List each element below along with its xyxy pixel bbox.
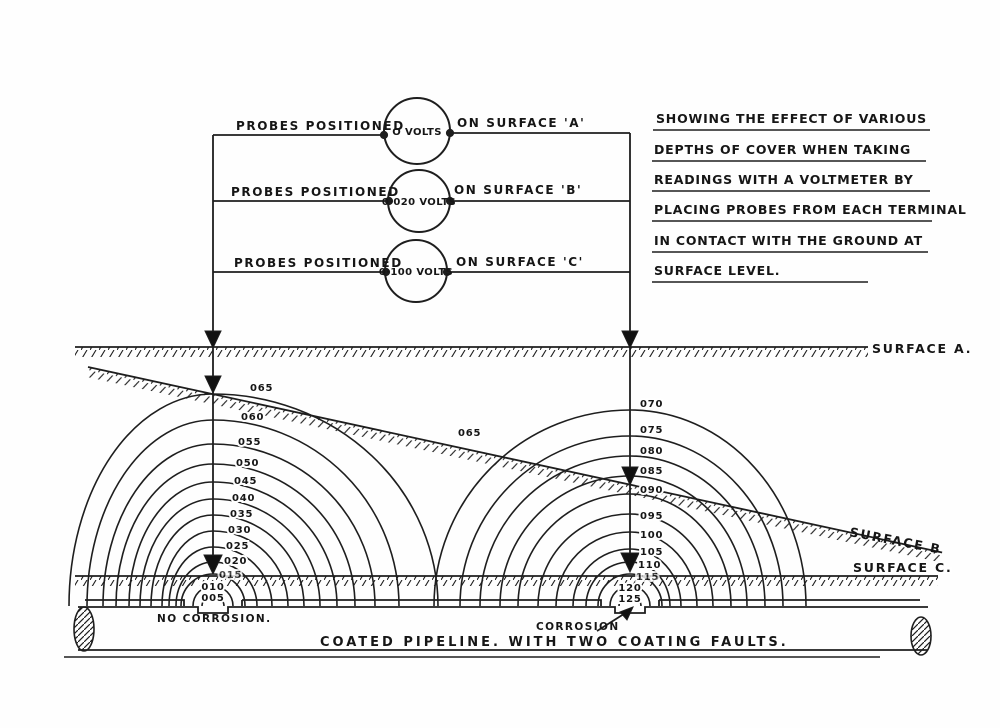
surface-a-label: SURFACE A. bbox=[872, 341, 972, 356]
equipotential-value: 055 bbox=[238, 437, 261, 448]
row-c-left-label: PROBES POSITIONED bbox=[234, 256, 403, 270]
equipotential-value: 085 bbox=[640, 466, 663, 477]
description-block: SHOWING THE EFFECT OF VARIOUS DEPTHS OF … bbox=[652, 111, 967, 282]
description-line-1: SHOWING THE EFFECT OF VARIOUS bbox=[656, 111, 927, 126]
hand-drawn-diagram-page: PROBES POSITIONED O VOLTS ON SURFACE 'A'… bbox=[0, 0, 1000, 728]
arc-030 bbox=[162, 531, 288, 606]
equipotential-value: 100 bbox=[640, 530, 663, 541]
pipeline-annotations: NO CORROSION. CORROSION COATED PIPELINE.… bbox=[157, 613, 789, 650]
description-line-5: IN CONTACT WITH THE GROUND AT bbox=[654, 233, 923, 248]
probe-circuit bbox=[213, 98, 630, 573]
circuit-labels: PROBES POSITIONED O VOLTS ON SURFACE 'A'… bbox=[231, 116, 585, 278]
equipotential-value: 010 bbox=[201, 582, 224, 593]
equipotential-value: 115 bbox=[636, 572, 659, 583]
equipotential-value: 095 bbox=[640, 511, 663, 522]
voltmeter-b-reading: 0·020 VOLTS bbox=[382, 197, 456, 208]
equipotential-value: 125 bbox=[618, 594, 641, 605]
surface-b-crossing-value: 065 bbox=[458, 428, 481, 439]
pipeline-right-end-cap bbox=[911, 617, 931, 655]
equipotential-value: 120 bbox=[618, 583, 641, 594]
description-line-2: DEPTHS OF COVER WHEN TAKING bbox=[654, 142, 911, 157]
equipotential-value: 090 bbox=[640, 485, 663, 496]
diagram-canvas: PROBES POSITIONED O VOLTS ON SURFACE 'A'… bbox=[0, 0, 1000, 728]
equipotential-value: 035 bbox=[230, 509, 253, 520]
voltmeter-a-reading: O VOLTS bbox=[392, 127, 442, 138]
equipotential-value: 110 bbox=[638, 560, 661, 571]
description-line-3: READINGS WITH A VOLTMETER BY bbox=[654, 172, 914, 187]
pipeline-caption: COATED PIPELINE. WITH TWO COATING FAULTS… bbox=[320, 635, 789, 650]
left-arrow-surface-a bbox=[205, 331, 221, 348]
right-arrow-surface-a bbox=[622, 331, 638, 348]
equipotential-value: 070 bbox=[640, 399, 663, 410]
corrosion-label: CORROSION bbox=[536, 621, 620, 633]
equipotential-value: 075 bbox=[640, 425, 663, 436]
junction-dot bbox=[447, 130, 453, 136]
surface-a-hatch bbox=[75, 347, 868, 357]
equipotential-value: 065 bbox=[250, 383, 273, 394]
equipotential-value: 080 bbox=[640, 446, 663, 457]
equipotential-value: 045 bbox=[234, 476, 257, 487]
row-a-left-label: PROBES POSITIONED bbox=[236, 119, 405, 133]
equipotential-value: 020 bbox=[224, 556, 247, 567]
probe-arrowheads bbox=[204, 331, 639, 574]
equipotential-value: 050 bbox=[236, 458, 259, 469]
surface-a bbox=[75, 347, 868, 357]
equipotential-value: 030 bbox=[228, 525, 251, 536]
equipotential-value: 060 bbox=[241, 412, 264, 423]
equipotential-value: 040 bbox=[232, 493, 255, 504]
row-c-right-label: ON SURFACE 'C' bbox=[456, 255, 584, 269]
surface-c-label: SURFACE C. bbox=[853, 560, 953, 575]
equipotential-value: 005 bbox=[201, 593, 224, 604]
description-line-4: PLACING PROBES FROM EACH TERMINAL bbox=[654, 202, 967, 217]
equipotential-value: 105 bbox=[640, 547, 663, 558]
row-a-right-label: ON SURFACE 'A' bbox=[457, 116, 585, 130]
voltmeter-c-reading: 0·100 VOLTS bbox=[379, 267, 453, 278]
pipeline-left-end-cap bbox=[74, 607, 94, 651]
surface-labels: SURFACE A. SURFACE B SURFACE C. bbox=[848, 341, 972, 575]
no-corrosion-label: NO CORROSION. bbox=[157, 613, 271, 625]
equipotential-value: 015 bbox=[219, 570, 242, 581]
left-arrow-surface-b bbox=[205, 376, 221, 393]
equipotential-value: 025 bbox=[226, 541, 249, 552]
surface-b-line bbox=[88, 367, 942, 552]
description-line-6: SURFACE LEVEL. bbox=[654, 263, 780, 278]
row-b-left-label: PROBES POSITIONED bbox=[231, 185, 400, 199]
row-b-right-label: ON SURFACE 'B' bbox=[454, 183, 582, 197]
